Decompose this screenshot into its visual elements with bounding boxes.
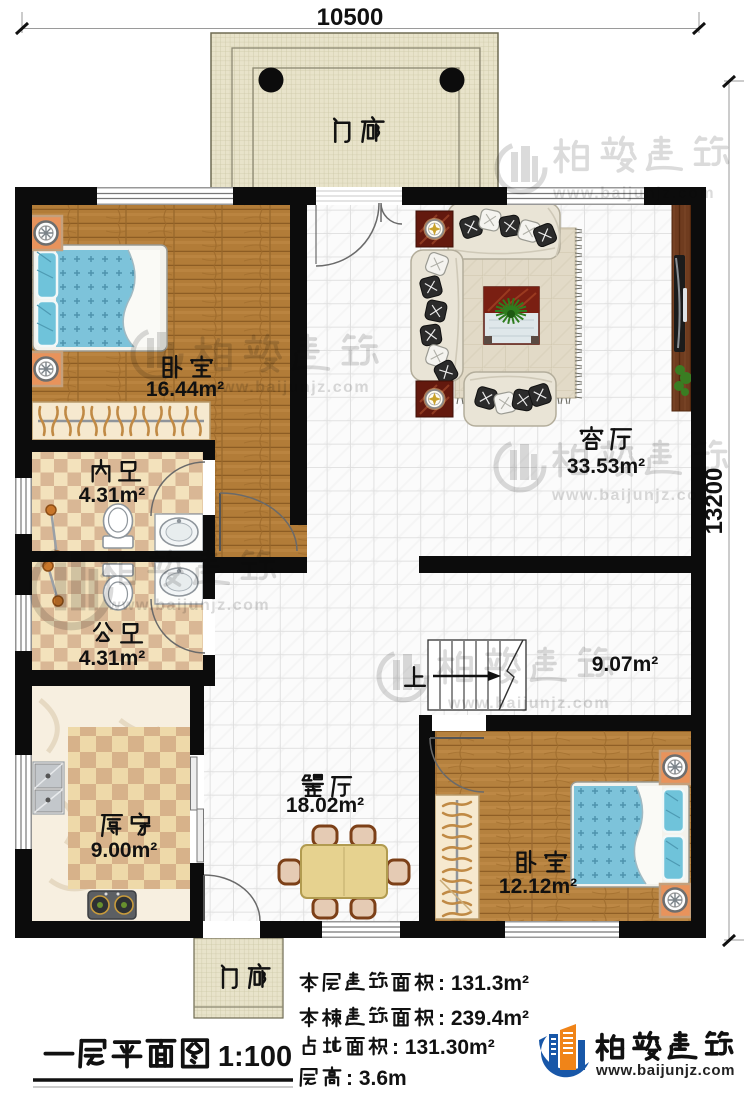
svg-text:33.53m²: 33.53m²	[567, 455, 645, 478]
svg-text:: 131.30m²: : 131.30m²	[392, 1036, 495, 1059]
svg-text:9.00m²: 9.00m²	[91, 839, 158, 862]
svg-text:www.baijunjz.com: www.baijunjz.com	[551, 487, 714, 504]
svg-text:16.44m²: 16.44m²	[146, 378, 224, 401]
svg-text:www.baijunjz.com: www.baijunjz.com	[207, 379, 370, 396]
svg-text:1:100: 1:100	[218, 1041, 292, 1073]
svg-text:18.02m²: 18.02m²	[286, 794, 364, 817]
svg-text:www.baijunjz.com: www.baijunjz.com	[447, 695, 610, 712]
svg-text:10500: 10500	[317, 4, 384, 31]
svg-text:9.07m²: 9.07m²	[592, 653, 659, 676]
svg-text:4.31m²: 4.31m²	[79, 484, 146, 507]
svg-text:www.baijunjz.com: www.baijunjz.com	[107, 597, 270, 614]
svg-text:12.12m²: 12.12m²	[499, 875, 577, 898]
svg-text:www.baijunjz.com: www.baijunjz.com	[595, 1062, 735, 1079]
svg-text:: 3.6m: : 3.6m	[346, 1067, 407, 1090]
svg-text:: 131.3m²: : 131.3m²	[438, 972, 529, 995]
svg-text:www.baijunjz.com: www.baijunjz.com	[552, 185, 715, 202]
svg-text:: 239.4m²: : 239.4m²	[438, 1007, 529, 1030]
svg-text:4.31m²: 4.31m²	[79, 647, 146, 670]
